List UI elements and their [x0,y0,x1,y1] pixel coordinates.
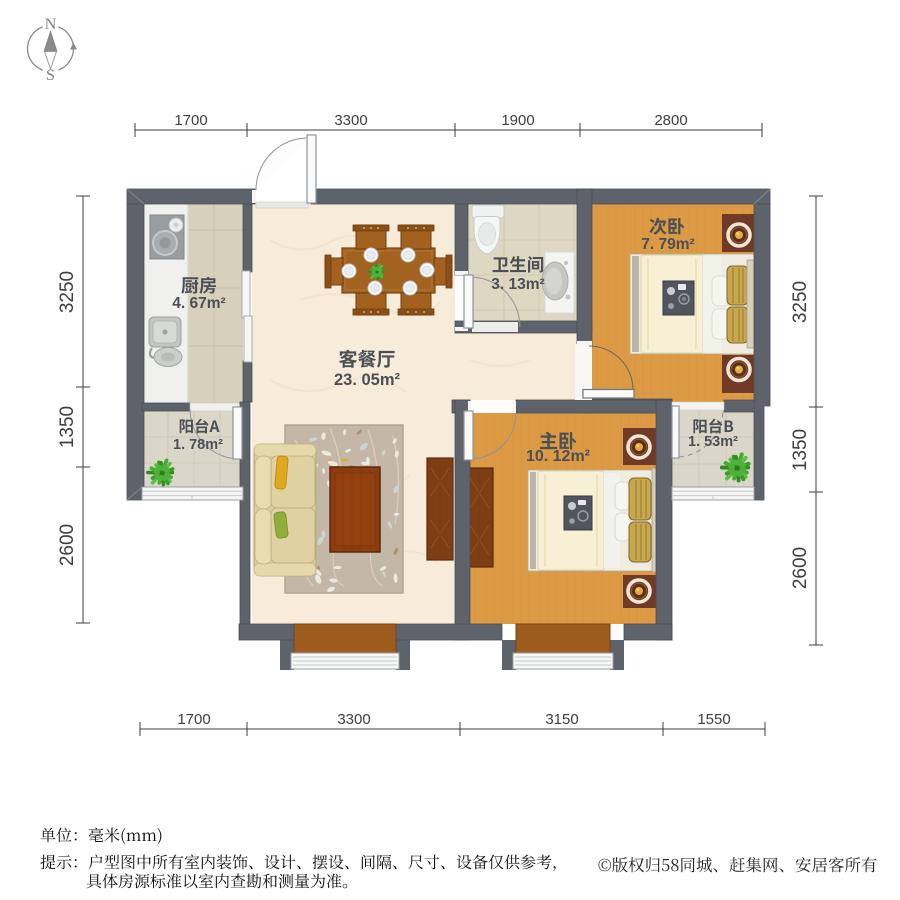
svg-text:3. 13m²: 3. 13m² [491,276,544,293]
svg-text:1700: 1700 [174,112,207,129]
svg-text:S: S [46,67,55,84]
svg-text:2800: 2800 [654,112,687,129]
svg-text:4. 67m²: 4. 67m² [172,295,225,312]
svg-text:1350: 1350 [57,406,78,448]
svg-text:2600: 2600 [790,547,811,589]
svg-text:3150: 3150 [545,711,578,728]
svg-text:3300: 3300 [334,112,367,129]
svg-text:10. 12m²: 10. 12m² [526,448,590,465]
svg-text:1350: 1350 [790,429,811,471]
svg-text:2600: 2600 [57,524,78,566]
svg-text:1. 78m²: 1. 78m² [173,437,223,453]
svg-text:3250: 3250 [790,281,811,323]
svg-text:7. 79m²: 7. 79m² [641,236,694,253]
svg-text:1900: 1900 [501,112,534,129]
svg-text:3250: 3250 [57,271,78,313]
svg-text:23. 05m²: 23. 05m² [334,371,401,389]
svg-text:1700: 1700 [177,711,210,728]
svg-text:1. 53m²: 1. 53m² [688,434,738,450]
svg-text:N: N [45,16,57,33]
svg-text:3300: 3300 [337,711,370,728]
svg-text:1550: 1550 [697,711,730,728]
